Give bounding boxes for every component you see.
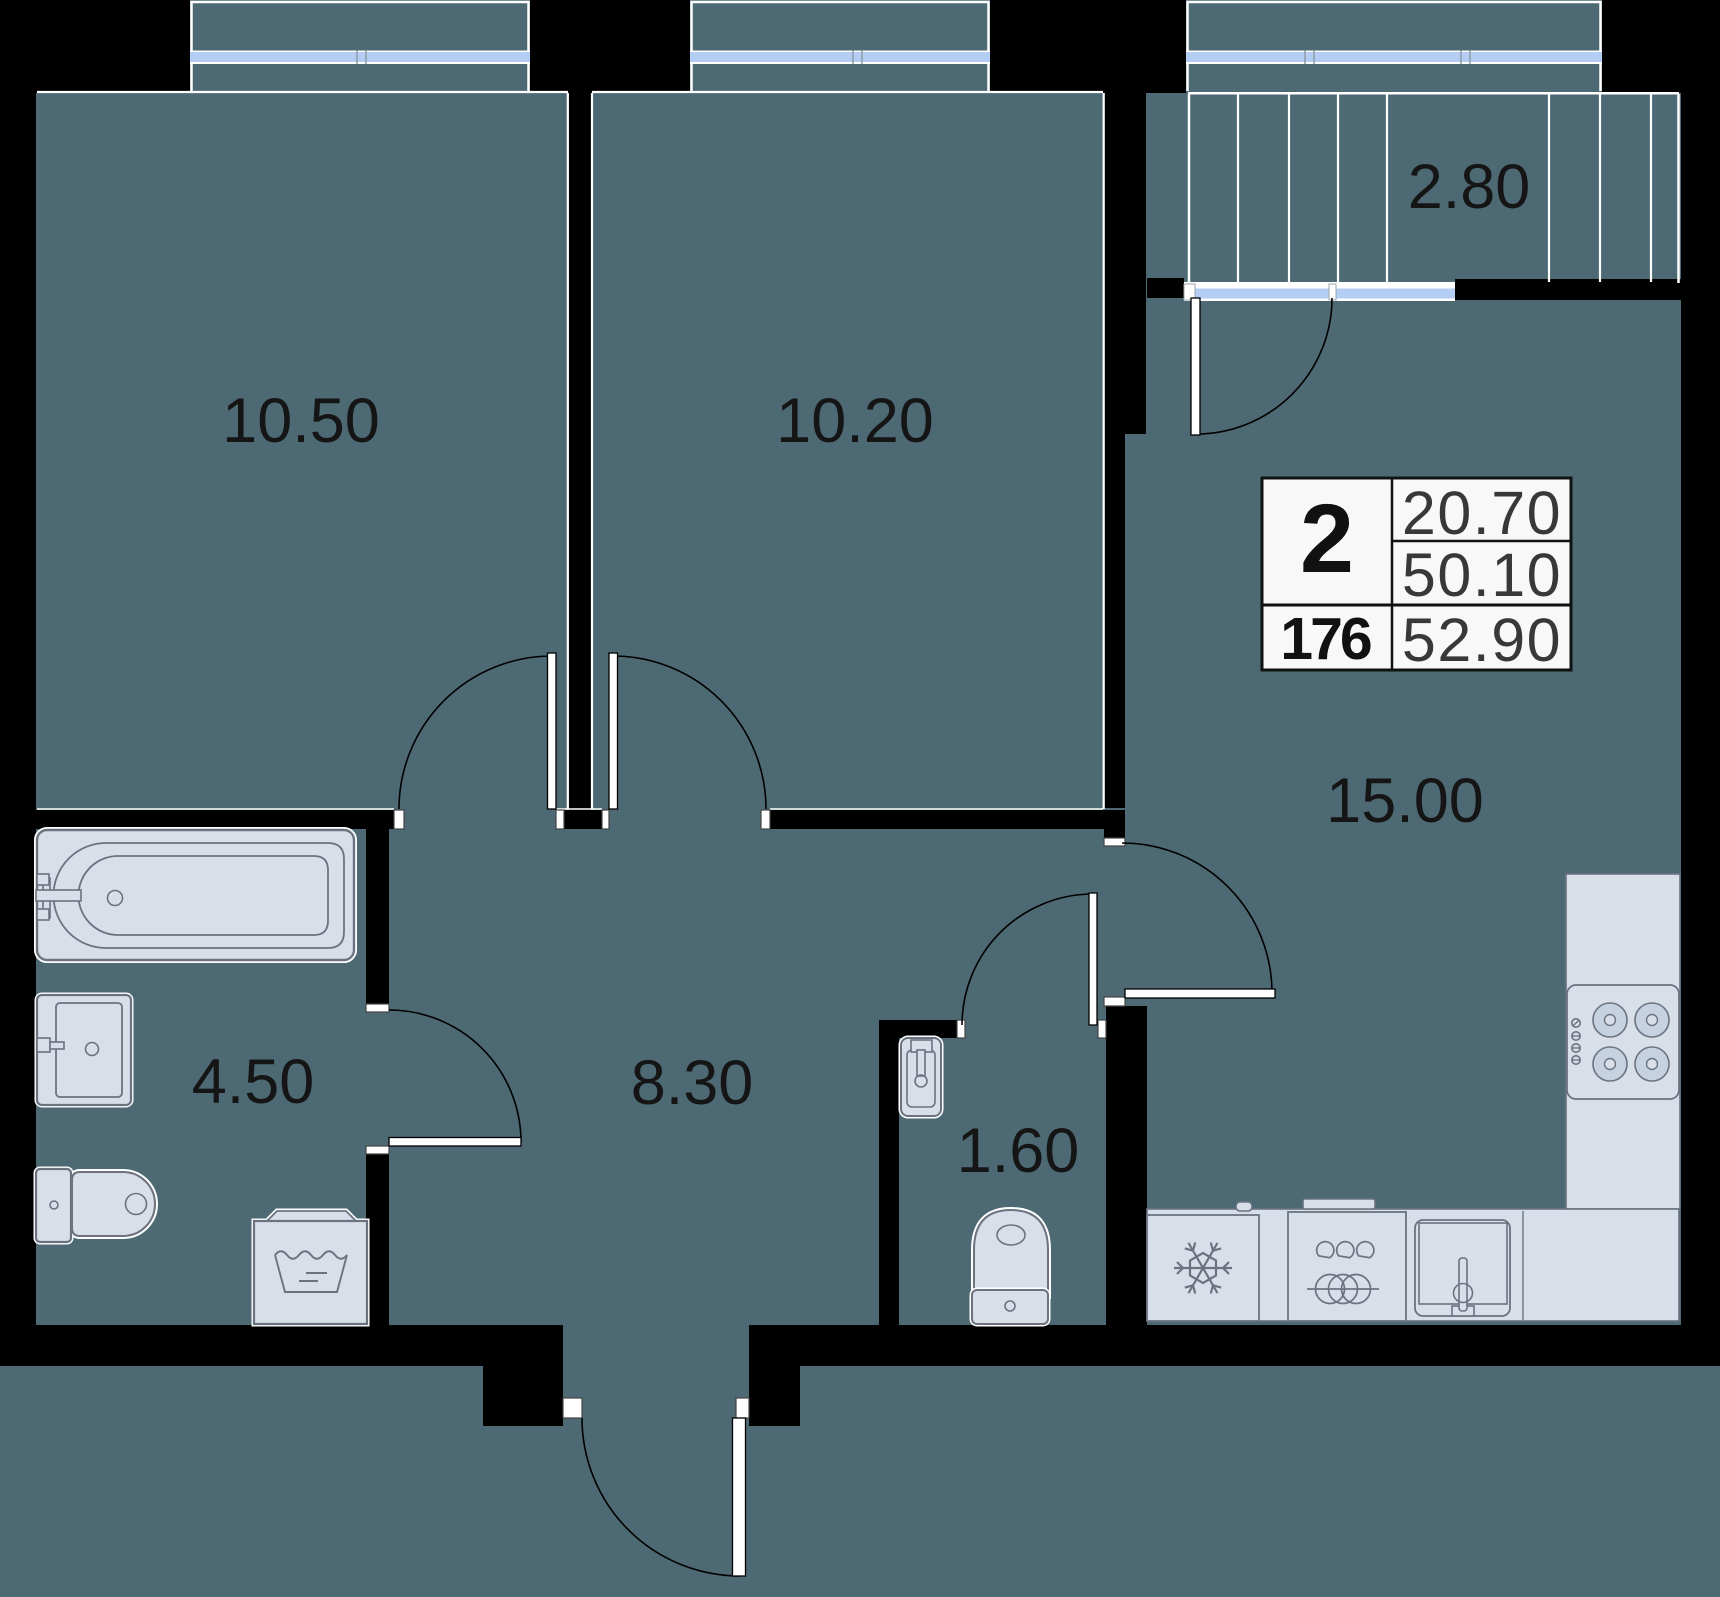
svg-text:2: 2	[1300, 484, 1354, 593]
svg-text:10.20: 10.20	[776, 386, 934, 456]
svg-text:8.30: 8.30	[631, 1048, 754, 1118]
svg-text:4.50: 4.50	[192, 1047, 315, 1117]
svg-text:15.00: 15.00	[1326, 766, 1484, 836]
svg-text:2.80: 2.80	[1408, 152, 1531, 222]
svg-text:50.10: 50.10	[1402, 541, 1562, 609]
svg-text:20.70: 20.70	[1402, 479, 1562, 547]
svg-text:176: 176	[1280, 606, 1371, 672]
svg-text:1.60: 1.60	[957, 1116, 1080, 1186]
svg-text:10.50: 10.50	[222, 386, 380, 456]
svg-text:52.90: 52.90	[1402, 606, 1562, 674]
